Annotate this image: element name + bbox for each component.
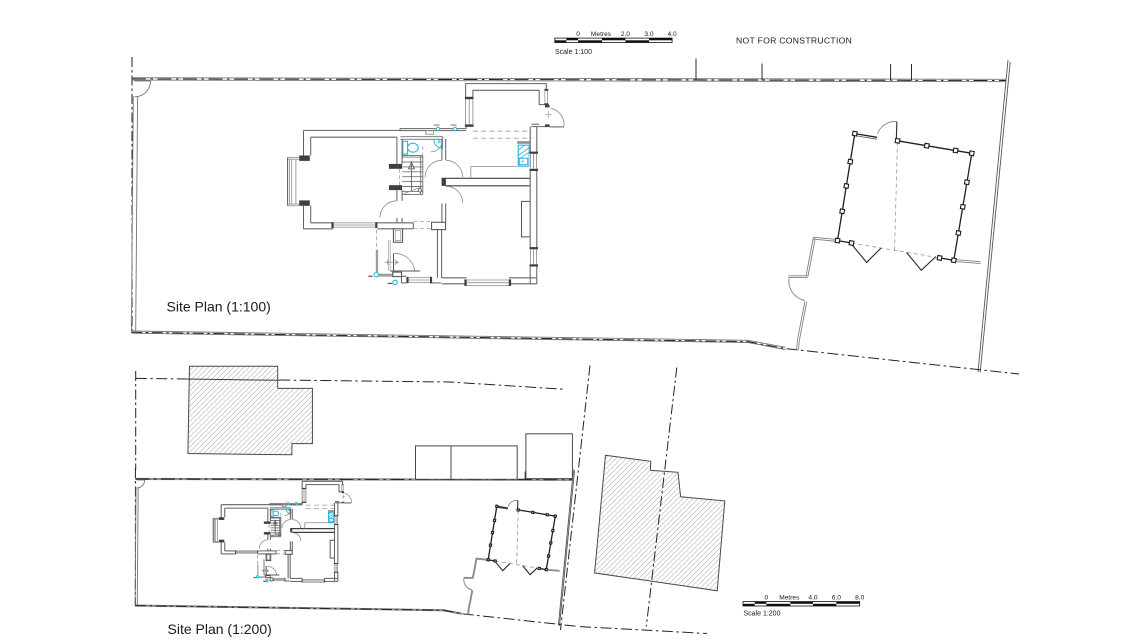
svg-text:Scale 1:200: Scale 1:200	[744, 611, 781, 618]
svg-text:0: 0	[764, 595, 768, 602]
svg-text:4.0: 4.0	[668, 31, 677, 38]
svg-text:NOT FOR CONSTRUCTION: NOT FOR CONSTRUCTION	[736, 36, 852, 46]
svg-text:6.0: 6.0	[832, 595, 841, 602]
svg-text:Site Plan (1:200): Site Plan (1:200)	[168, 621, 272, 637]
svg-text:8.0: 8.0	[855, 595, 864, 602]
svg-text:Metres: Metres	[591, 31, 612, 38]
svg-text:0: 0	[576, 31, 580, 38]
svg-text:Scale 1:100: Scale 1:100	[555, 49, 592, 56]
svg-text:4.0: 4.0	[808, 595, 817, 602]
svg-text:3.0: 3.0	[644, 31, 653, 38]
svg-text:2.0: 2.0	[621, 31, 630, 38]
svg-text:Site Plan (1:100): Site Plan (1:100)	[167, 299, 271, 315]
svg-text:Metres: Metres	[779, 595, 800, 602]
